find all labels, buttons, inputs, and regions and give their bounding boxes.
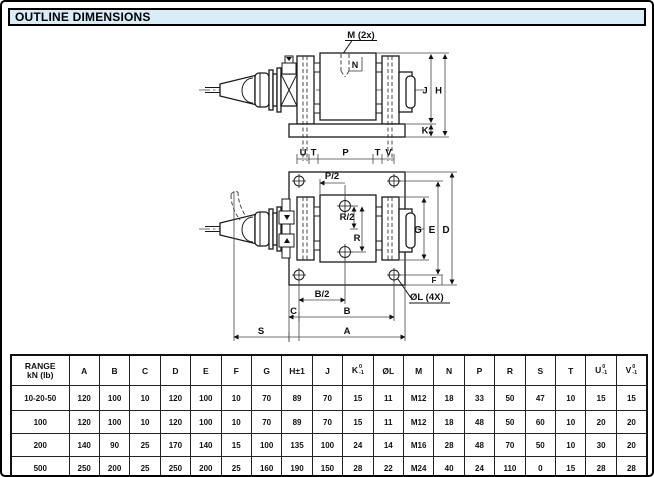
- dim-label-e: E: [429, 225, 436, 236]
- dim-label-b: B: [344, 306, 351, 317]
- load-button-side: [406, 76, 415, 108]
- dim-label-s: S: [258, 326, 264, 337]
- datasheet-page: OUTLINE DIMENSIONS: [0, 0, 654, 477]
- dim-label-p-half: P/2: [325, 171, 339, 182]
- table-cell: M24: [403, 457, 433, 477]
- table-cell: 70: [312, 386, 342, 411]
- table-cell: 90: [99, 434, 129, 457]
- dim-label-t-left: T: [311, 148, 317, 159]
- right-flange-side: [382, 56, 399, 124]
- table-cell: 11: [373, 411, 403, 434]
- table-cell: 100: [191, 386, 221, 411]
- column-header-m: M: [403, 355, 433, 386]
- table-cell: 200: [99, 457, 129, 477]
- table-cell: 15: [556, 457, 586, 477]
- table-cell: 30: [586, 434, 616, 457]
- cable-gland-side: [255, 73, 269, 107]
- table-cell: 28: [343, 457, 373, 477]
- table-cell: 15: [343, 411, 373, 434]
- left-flange-side: [297, 56, 314, 124]
- dim-label-d: D: [442, 225, 449, 236]
- table-row: 10-20-5012010010120100107089701511M12183…: [11, 386, 647, 411]
- table-cell: 28: [586, 457, 616, 477]
- column-header-j: J: [312, 355, 342, 386]
- table-cell: 18: [434, 386, 464, 411]
- table-cell: 25: [130, 434, 160, 457]
- table-cell: 48: [464, 411, 494, 434]
- connector-block-side: [281, 74, 297, 106]
- column-header-h1: H±1: [282, 355, 312, 386]
- dim-label-c: C: [290, 306, 297, 317]
- table-cell: 140: [191, 434, 221, 457]
- table-cell: 25: [221, 457, 251, 477]
- dim-label-r: R: [354, 233, 361, 244]
- table-cell: 10: [130, 386, 160, 411]
- range-cell: 200: [11, 434, 69, 457]
- column-header-k: K0-1: [343, 355, 373, 386]
- column-header-v: V0-1: [616, 355, 647, 386]
- column-header-n: N: [434, 355, 464, 386]
- side-view-drawing: [199, 53, 426, 161]
- table-cell: 10: [556, 434, 586, 457]
- table-cell: 160: [251, 457, 281, 477]
- column-header-s: S: [525, 355, 555, 386]
- table-cell: 0: [525, 457, 555, 477]
- table-cell: 120: [160, 386, 190, 411]
- table-cell: 10: [221, 386, 251, 411]
- table-cell: M12: [403, 386, 433, 411]
- table-cell: 18: [434, 411, 464, 434]
- table-cell: 40: [434, 457, 464, 477]
- table-cell: 20: [616, 434, 647, 457]
- table-cell: 100: [251, 434, 281, 457]
- table-cell: 20: [586, 411, 616, 434]
- range-cell: 500: [11, 457, 69, 477]
- dim-label-hole-callout: ØL (4X): [410, 292, 444, 303]
- dim-label-r-half: R/2: [340, 212, 355, 223]
- table-cell: 70: [495, 434, 525, 457]
- table-cell: 33: [464, 386, 494, 411]
- table-cell: 28: [434, 434, 464, 457]
- dim-label-g: G: [414, 225, 422, 236]
- table-cell: 22: [373, 457, 403, 477]
- table-cell: 70: [251, 411, 281, 434]
- table-cell: M12: [403, 411, 433, 434]
- table-cell: 10: [556, 386, 586, 411]
- table-cell: 48: [464, 434, 494, 457]
- table-cell: 10: [130, 411, 160, 434]
- table-cell: 70: [312, 411, 342, 434]
- table-cell: 89: [282, 411, 312, 434]
- dim-label-m-2x: M (2x): [347, 30, 374, 41]
- column-header-p: P: [464, 355, 494, 386]
- column-header-g: G: [251, 355, 281, 386]
- dim-label-f: F: [432, 276, 437, 285]
- table-cell: 170: [160, 434, 190, 457]
- dim-label-h: H: [435, 86, 442, 97]
- table-cell: 100: [99, 386, 129, 411]
- table-cell: 15: [221, 434, 251, 457]
- column-header-c: C: [130, 355, 160, 386]
- dim-label-v: V: [385, 148, 392, 159]
- table-cell: 120: [69, 411, 99, 434]
- dim-label-p: P: [342, 148, 349, 159]
- dimensions-table: RANGEkN (lb)ABCDEFGH±1JK0-1ØLMNPRSTU0-1V…: [10, 354, 648, 477]
- table-cell: 25: [130, 457, 160, 477]
- table-cell: 24: [343, 434, 373, 457]
- table-cell: 100: [191, 411, 221, 434]
- table-cell: 47: [525, 386, 555, 411]
- table-cell: 100: [312, 434, 342, 457]
- table-cell: 190: [282, 457, 312, 477]
- table-cell: 89: [282, 386, 312, 411]
- table-row: 10012010010120100107089701511M1218485060…: [11, 411, 647, 434]
- table-cell: 10: [556, 411, 586, 434]
- dim-label-u: U: [300, 148, 307, 159]
- dim-label-n: N: [352, 60, 359, 70]
- dim-label-b-half: B/2: [315, 289, 330, 300]
- column-header-e: E: [191, 355, 221, 386]
- column-header-l: ØL: [373, 355, 403, 386]
- dim-label-j: J: [422, 86, 427, 97]
- column-header-d: D: [160, 355, 190, 386]
- table-cell: 110: [495, 457, 525, 477]
- table-cell: 60: [525, 411, 555, 434]
- table-cell: 150: [312, 457, 342, 477]
- table-cell: 15: [616, 386, 647, 411]
- column-header-t: T: [556, 355, 586, 386]
- table-cell: 50: [525, 434, 555, 457]
- table-cell: 250: [160, 457, 190, 477]
- range-cell: 10-20-50: [11, 386, 69, 411]
- table-cell: 14: [373, 434, 403, 457]
- range-cell: 100: [11, 411, 69, 434]
- range-column-header: RANGEkN (lb): [11, 355, 69, 386]
- cable-gland-plan: [255, 212, 269, 246]
- section-title-bar: OUTLINE DIMENSIONS: [8, 8, 646, 26]
- table-cell: 100: [99, 411, 129, 434]
- strain-relief-cone-plan: [220, 215, 255, 244]
- column-header-b: B: [99, 355, 129, 386]
- table-cell: 11: [373, 386, 403, 411]
- table-row: 2001409025170140151001351002414M16284870…: [11, 434, 647, 457]
- table-cell: 120: [69, 386, 99, 411]
- table-cell: 250: [69, 457, 99, 477]
- dim-label-a: A: [344, 326, 351, 337]
- table-row: 50025020025250200251601901502822M2440241…: [11, 457, 647, 477]
- table-cell: 140: [69, 434, 99, 457]
- table-cell: 135: [282, 434, 312, 457]
- column-header-f: F: [221, 355, 251, 386]
- table-cell: 50: [495, 386, 525, 411]
- column-header-a: A: [69, 355, 99, 386]
- table-cell: 24: [464, 457, 494, 477]
- dim-label-k: K: [422, 126, 429, 137]
- table-cell: 70: [251, 386, 281, 411]
- dim-label-t-right: T: [375, 148, 381, 159]
- table-cell: 28: [616, 457, 647, 477]
- strain-relief-cone-side: [220, 76, 255, 105]
- plan-view-drawing: [199, 172, 426, 285]
- table-cell: 50: [495, 411, 525, 434]
- center-body-side: [320, 53, 376, 120]
- outline-dimensions-drawing: M (2x) N J H K U T P T V: [2, 27, 654, 354]
- clamp-detail-side: [282, 56, 296, 74]
- table-cell: 120: [160, 411, 190, 434]
- table-cell: 15: [586, 386, 616, 411]
- table-cell: 10: [221, 411, 251, 434]
- left-flange-plan: [297, 197, 314, 260]
- column-header-u: U0-1: [586, 355, 616, 386]
- table-cell: 15: [343, 386, 373, 411]
- dimensions-table-header: RANGEkN (lb)ABCDEFGH±1JK0-1ØLMNPRSTU0-1V…: [11, 355, 647, 386]
- table-cell: 200: [191, 457, 221, 477]
- section-title: OUTLINE DIMENSIONS: [10, 10, 151, 24]
- column-header-r: R: [495, 355, 525, 386]
- right-flange-plan: [382, 197, 399, 260]
- alternate-cable-route: [231, 192, 246, 220]
- table-cell: 20: [616, 411, 647, 434]
- table-cell: M16: [403, 434, 433, 457]
